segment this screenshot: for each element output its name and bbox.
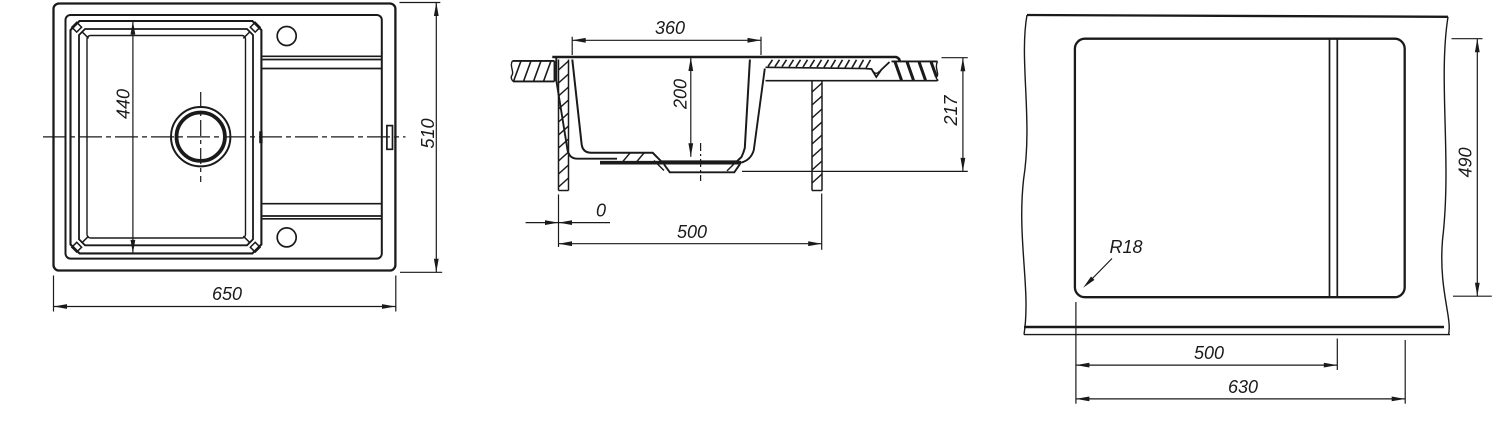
svg-text:360: 360 <box>655 18 685 38</box>
svg-text:510: 510 <box>418 118 438 148</box>
svg-text:650: 650 <box>212 284 242 304</box>
svg-text:490: 490 <box>1456 147 1476 177</box>
svg-text:500: 500 <box>1194 343 1224 363</box>
svg-text:R18: R18 <box>1109 237 1142 257</box>
svg-text:440: 440 <box>114 89 134 119</box>
svg-text:630: 630 <box>1228 377 1258 397</box>
svg-text:0: 0 <box>596 201 606 221</box>
svg-text:200: 200 <box>671 79 691 110</box>
svg-text:217: 217 <box>941 95 961 127</box>
svg-text:500: 500 <box>677 222 707 242</box>
